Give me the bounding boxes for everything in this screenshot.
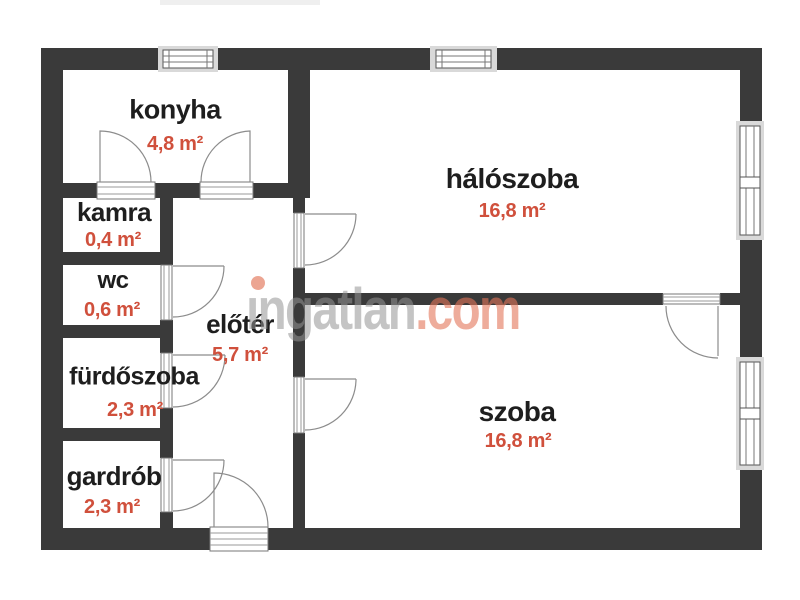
room-area-szoba: 16,8 m² — [485, 431, 552, 451]
window-konyha — [158, 46, 218, 72]
wall-furdoszoba-gardrob — [63, 428, 173, 441]
windows — [158, 46, 764, 470]
door-swing-entrance — [214, 473, 268, 527]
threshold-entrance-door — [210, 527, 268, 551]
threshold-haloszoba-door — [294, 213, 304, 268]
room-label-konyha: konyha — [129, 97, 221, 124]
door-swing-konyha — [201, 131, 250, 182]
threshold-haloszoba-szoba-door — [663, 294, 720, 304]
wall-konyha-bottom-seg2 — [155, 183, 200, 198]
threshold-gardrob-door — [161, 458, 172, 512]
threshold-szoba-door — [294, 377, 304, 433]
wall-eloter-right-seg1 — [293, 198, 305, 213]
wall-kamra-wc — [63, 252, 173, 265]
room-area-furdoszoba: 2,3 m² — [107, 400, 163, 420]
window-szoba-right — [736, 357, 764, 470]
window-haloszoba-top — [430, 46, 497, 72]
door-swing-haloszoba-szoba — [666, 306, 718, 358]
wall-exterior-left — [41, 48, 63, 550]
room-area-gardrob: 2,3 m² — [84, 497, 140, 517]
wall-exterior-bottom — [41, 528, 762, 550]
room-label-haloszoba: hálószoba — [446, 165, 578, 193]
floorplan-canvas: konyha 4,8 m² kamra 0,4 m² wc 0,6 m² für… — [0, 0, 800, 600]
wall-eloter-left-seg4 — [160, 512, 173, 528]
room-label-gardrob: gardrób — [67, 463, 162, 489]
wall-haloszoba-szoba-seg1 — [305, 293, 663, 305]
room-area-konyha: 4,8 m² — [147, 134, 203, 154]
wall-eloter-right-seg3 — [293, 433, 305, 528]
wall-eloter-right-seg2 — [293, 268, 305, 377]
wall-haloszoba-szoba-seg2 — [720, 293, 740, 305]
room-area-haloszoba: 16,8 m² — [479, 201, 546, 221]
room-area-wc: 0,6 m² — [84, 300, 140, 320]
window-haloszoba-right — [736, 121, 764, 240]
wall-konyha-bottom-seg3 — [253, 183, 288, 198]
room-area-kamra: 0,4 m² — [85, 230, 141, 250]
room-label-eloter: előtér — [206, 311, 274, 337]
room-area-eloter: 5,7 m² — [212, 345, 268, 365]
room-label-kamra: kamra — [77, 199, 151, 225]
wall-konyha-bottom-seg1 — [63, 183, 97, 198]
room-label-wc: wc — [97, 269, 128, 293]
door-swing-gardrob — [173, 460, 224, 511]
door-swing-haloszoba — [305, 214, 356, 265]
threshold-wc-door — [161, 265, 172, 320]
threshold-konyha-door — [200, 182, 253, 199]
door-swing-kamra — [100, 131, 151, 182]
door-swing-szoba — [305, 379, 356, 430]
room-label-szoba: szoba — [479, 398, 556, 426]
room-label-furdoszoba: fürdőszoba — [69, 365, 199, 390]
wall-wc-furdoszoba — [63, 325, 173, 338]
wall-konyha-haloszoba — [288, 70, 310, 198]
wall-exterior-top — [41, 48, 762, 70]
